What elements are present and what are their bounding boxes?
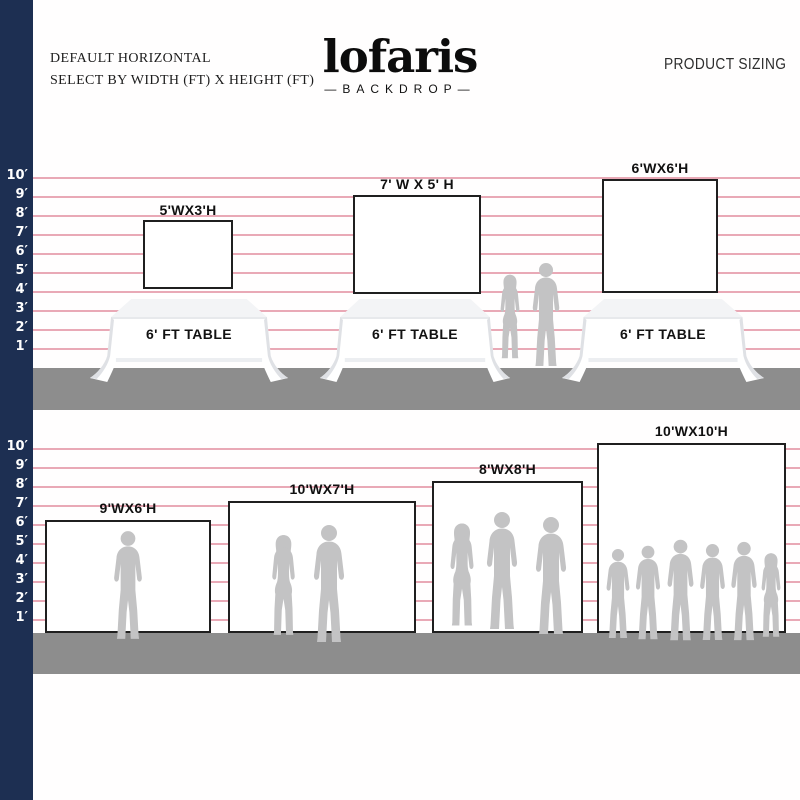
ruler-bar [0,0,33,800]
ruler-tick-label: 2′ [0,320,28,335]
ruler-tick-label: 5′ [0,263,28,278]
ruler-tick-label: 3′ [0,572,28,587]
ruler-tick-label: 10′ [0,168,28,183]
ruler-tick-label: 10′ [0,439,28,454]
backdrop-size-label: 5'WX3'H [143,202,233,218]
man-silhouette-icon [533,263,559,366]
brand-name: lofaris [290,34,510,80]
man-silhouette-icon [636,546,660,640]
man-silhouette-icon [114,531,142,639]
ruler-tick-label: 6′ [0,515,28,530]
backdrop-size-label: 9'WX6'H [45,500,211,516]
brand-tagline: —BACKDROP— [290,82,510,96]
ruler-tick-label: 6′ [0,244,28,259]
man-silhouette-icon [668,540,694,641]
subtitle-line2: SELECT BY WIDTH (FT) X HEIGHT (FT) [50,70,314,92]
man-silhouette-icon [487,512,517,629]
table-label: 6' FT TABLE [560,326,766,342]
man-silhouette-icon [607,549,630,638]
man-silhouette-icon [731,542,756,640]
backdrop-size-label: 6'WX6'H [592,160,728,176]
ruler-tick-label: 8′ [0,206,28,221]
table-label: 6' FT TABLE [88,326,290,342]
backdrop-size-label: 7' W X 5' H [333,176,501,192]
ruler-tick-label: 1′ [0,339,28,354]
people-silhouette-6 [599,527,785,655]
backdrop-size-label: 10'WX10'H [597,423,786,439]
woman-silhouette-icon [762,553,781,637]
man-silhouette-icon [314,525,344,642]
ruler-tick-label: 4′ [0,553,28,568]
ruler-tick-label: 7′ [0,225,28,240]
ruler-tick-label: 7′ [0,496,28,511]
ruler-tick-label: 1′ [0,610,28,625]
backdrop-size-label: 10'WX7'H [228,481,416,497]
woman-silhouette-icon [451,523,474,625]
people-silhouette-couple [492,253,568,373]
table-label: 6' FT TABLE [318,326,512,342]
people-silhouette-2 [262,517,357,649]
woman-silhouette-icon [272,535,294,635]
ruler-tick-label: 9′ [0,458,28,473]
subtitle-line1: DEFAULT HORIZONTAL [50,48,314,70]
man-silhouette-icon [700,544,725,640]
man-silhouette-icon [536,517,566,634]
people-silhouette-1 [105,524,151,647]
backdrop-size-label: 8'WX8'H [432,461,583,477]
chart-subtitle: DEFAULT HORIZONTAL SELECT BY WIDTH (FT) … [50,48,314,92]
backdrop-6x6 [602,179,718,293]
product-sizing-chart: DEFAULT HORIZONTAL SELECT BY WIDTH (FT) … [0,0,800,800]
ruler-tick-label: 2′ [0,591,28,606]
backdrop-5x3 [143,220,233,289]
ruler-tick-label: 4′ [0,282,28,297]
people-silhouette-3 [440,497,576,646]
backdrop-7x5 [353,195,481,294]
ruler-tick-label: 9′ [0,187,28,202]
ruler-tick-label: 5′ [0,534,28,549]
woman-silhouette-icon [501,275,520,359]
page-title: PRODUCT SIZING [664,56,786,74]
ruler-tick-label: 8′ [0,477,28,492]
brand-logo: lofaris —BACKDROP— [290,34,510,96]
ruler-tick-label: 3′ [0,301,28,316]
